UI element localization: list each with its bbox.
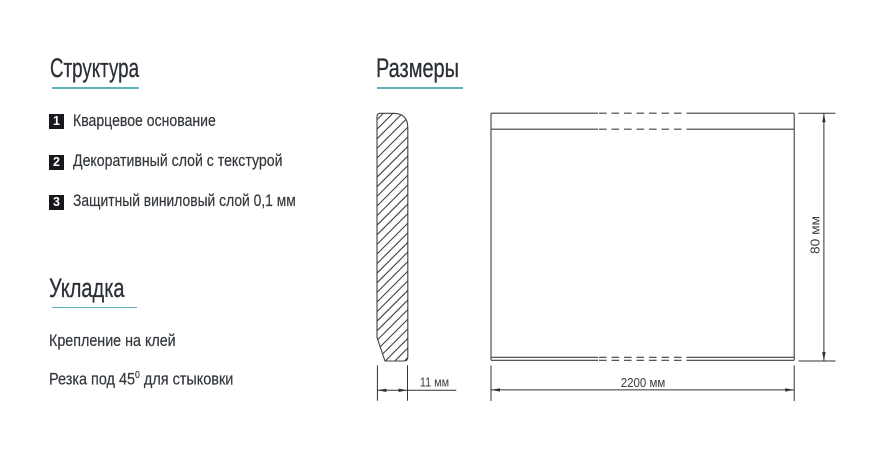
svg-text:11 мм: 11 мм [420,376,449,390]
svg-text:80 мм: 80 мм [808,216,822,254]
svg-text:2200 мм: 2200 мм [621,376,666,391]
